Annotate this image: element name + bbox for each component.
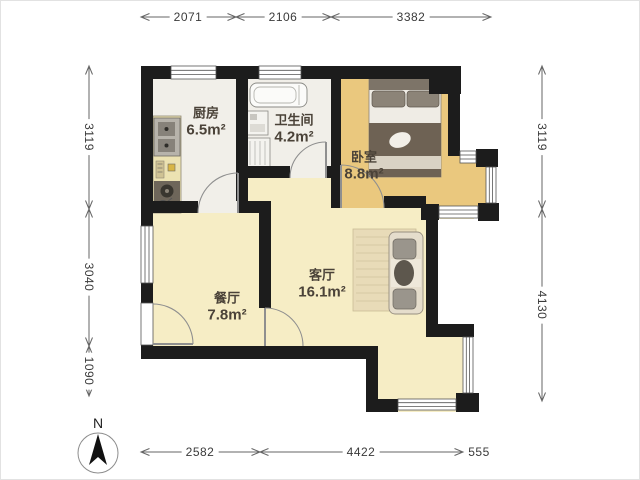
living-name: 客厅	[298, 268, 346, 284]
dining-name: 餐厅	[207, 291, 246, 307]
sofa-cushion-icon	[393, 289, 416, 309]
bay-window-top	[460, 151, 476, 163]
floorplan-canvas: 厨房 6.5m² 卫生间 4.2m² 卧室 8.8m² 餐厅 7.8m² 客厅 …	[0, 0, 640, 480]
sofa-pillow-icon	[394, 260, 414, 286]
kitchen-counter	[153, 116, 181, 213]
bathroom-window	[259, 66, 301, 79]
bay-window-right	[486, 167, 496, 203]
room-label-living: 客厅 16.1m²	[298, 268, 346, 303]
sofa-cushion-icon	[393, 239, 416, 259]
dim-bottom-2: 4422	[343, 445, 380, 459]
dim-right-1: 3119	[535, 119, 549, 155]
dim-left-1: 3119	[82, 119, 96, 155]
dim-top-1: 2071	[170, 10, 207, 24]
dim-bottom-3: 555	[468, 445, 490, 459]
bathroom-name: 卫生间	[274, 113, 313, 129]
room-label-bedroom: 卧室 8.8m²	[344, 150, 383, 185]
compass	[78, 433, 118, 473]
kitchen-area: 6.5m²	[186, 122, 225, 141]
bedroom-area: 8.8m²	[344, 166, 383, 185]
bathroom-area: 4.2m²	[274, 129, 313, 148]
kitchen-name: 厨房	[186, 106, 225, 122]
dim-bottom-1: 2582	[182, 445, 219, 459]
pillow-icon	[372, 91, 405, 107]
living-area: 16.1m²	[298, 284, 346, 303]
dim-left-3: 1090	[82, 353, 96, 390]
room-label-kitchen: 厨房 6.5m²	[186, 106, 225, 141]
living-window-right	[463, 337, 473, 393]
dim-top-3: 3382	[393, 10, 430, 24]
room-label-dining: 餐厅 7.8m²	[207, 291, 246, 326]
living-window-bottom	[398, 399, 456, 410]
dining-area: 7.8m²	[207, 307, 246, 326]
dining-window	[141, 226, 153, 283]
dim-top-2: 2106	[265, 10, 302, 24]
room-label-bathroom: 卫生间 4.2m²	[274, 113, 313, 148]
dim-left-2: 3040	[82, 259, 96, 296]
compass-label: N	[93, 415, 103, 431]
sofa-and-rug	[353, 229, 423, 314]
floorplan-drawing	[1, 1, 640, 480]
bay-window-bottom	[439, 206, 478, 218]
bedroom-name: 卧室	[344, 150, 383, 166]
kitchen-window	[171, 66, 216, 79]
dim-right-2: 4130	[535, 287, 549, 324]
